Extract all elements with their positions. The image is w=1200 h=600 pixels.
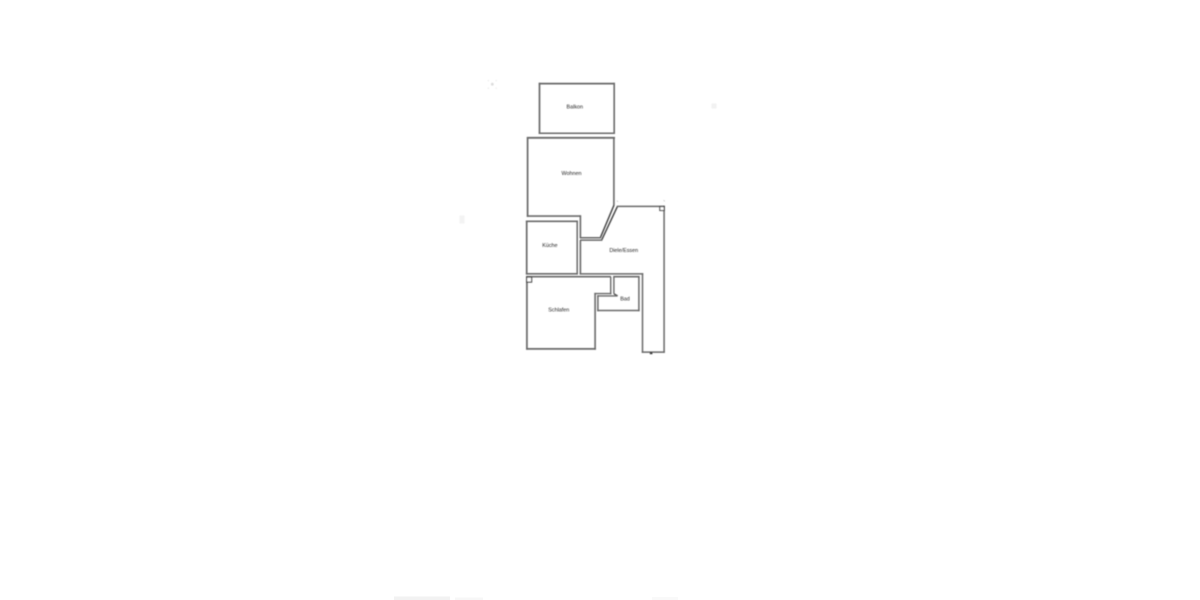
- svg-text:Schlafen: Schlafen: [548, 308, 569, 314]
- svg-text:Küche: Küche: [542, 243, 557, 249]
- svg-text:Bad: Bad: [620, 296, 630, 302]
- svg-text:Balkon: Balkon: [567, 105, 583, 111]
- svg-text:Wohnen: Wohnen: [562, 171, 582, 177]
- svg-text:Diele/Essen: Diele/Essen: [609, 248, 638, 254]
